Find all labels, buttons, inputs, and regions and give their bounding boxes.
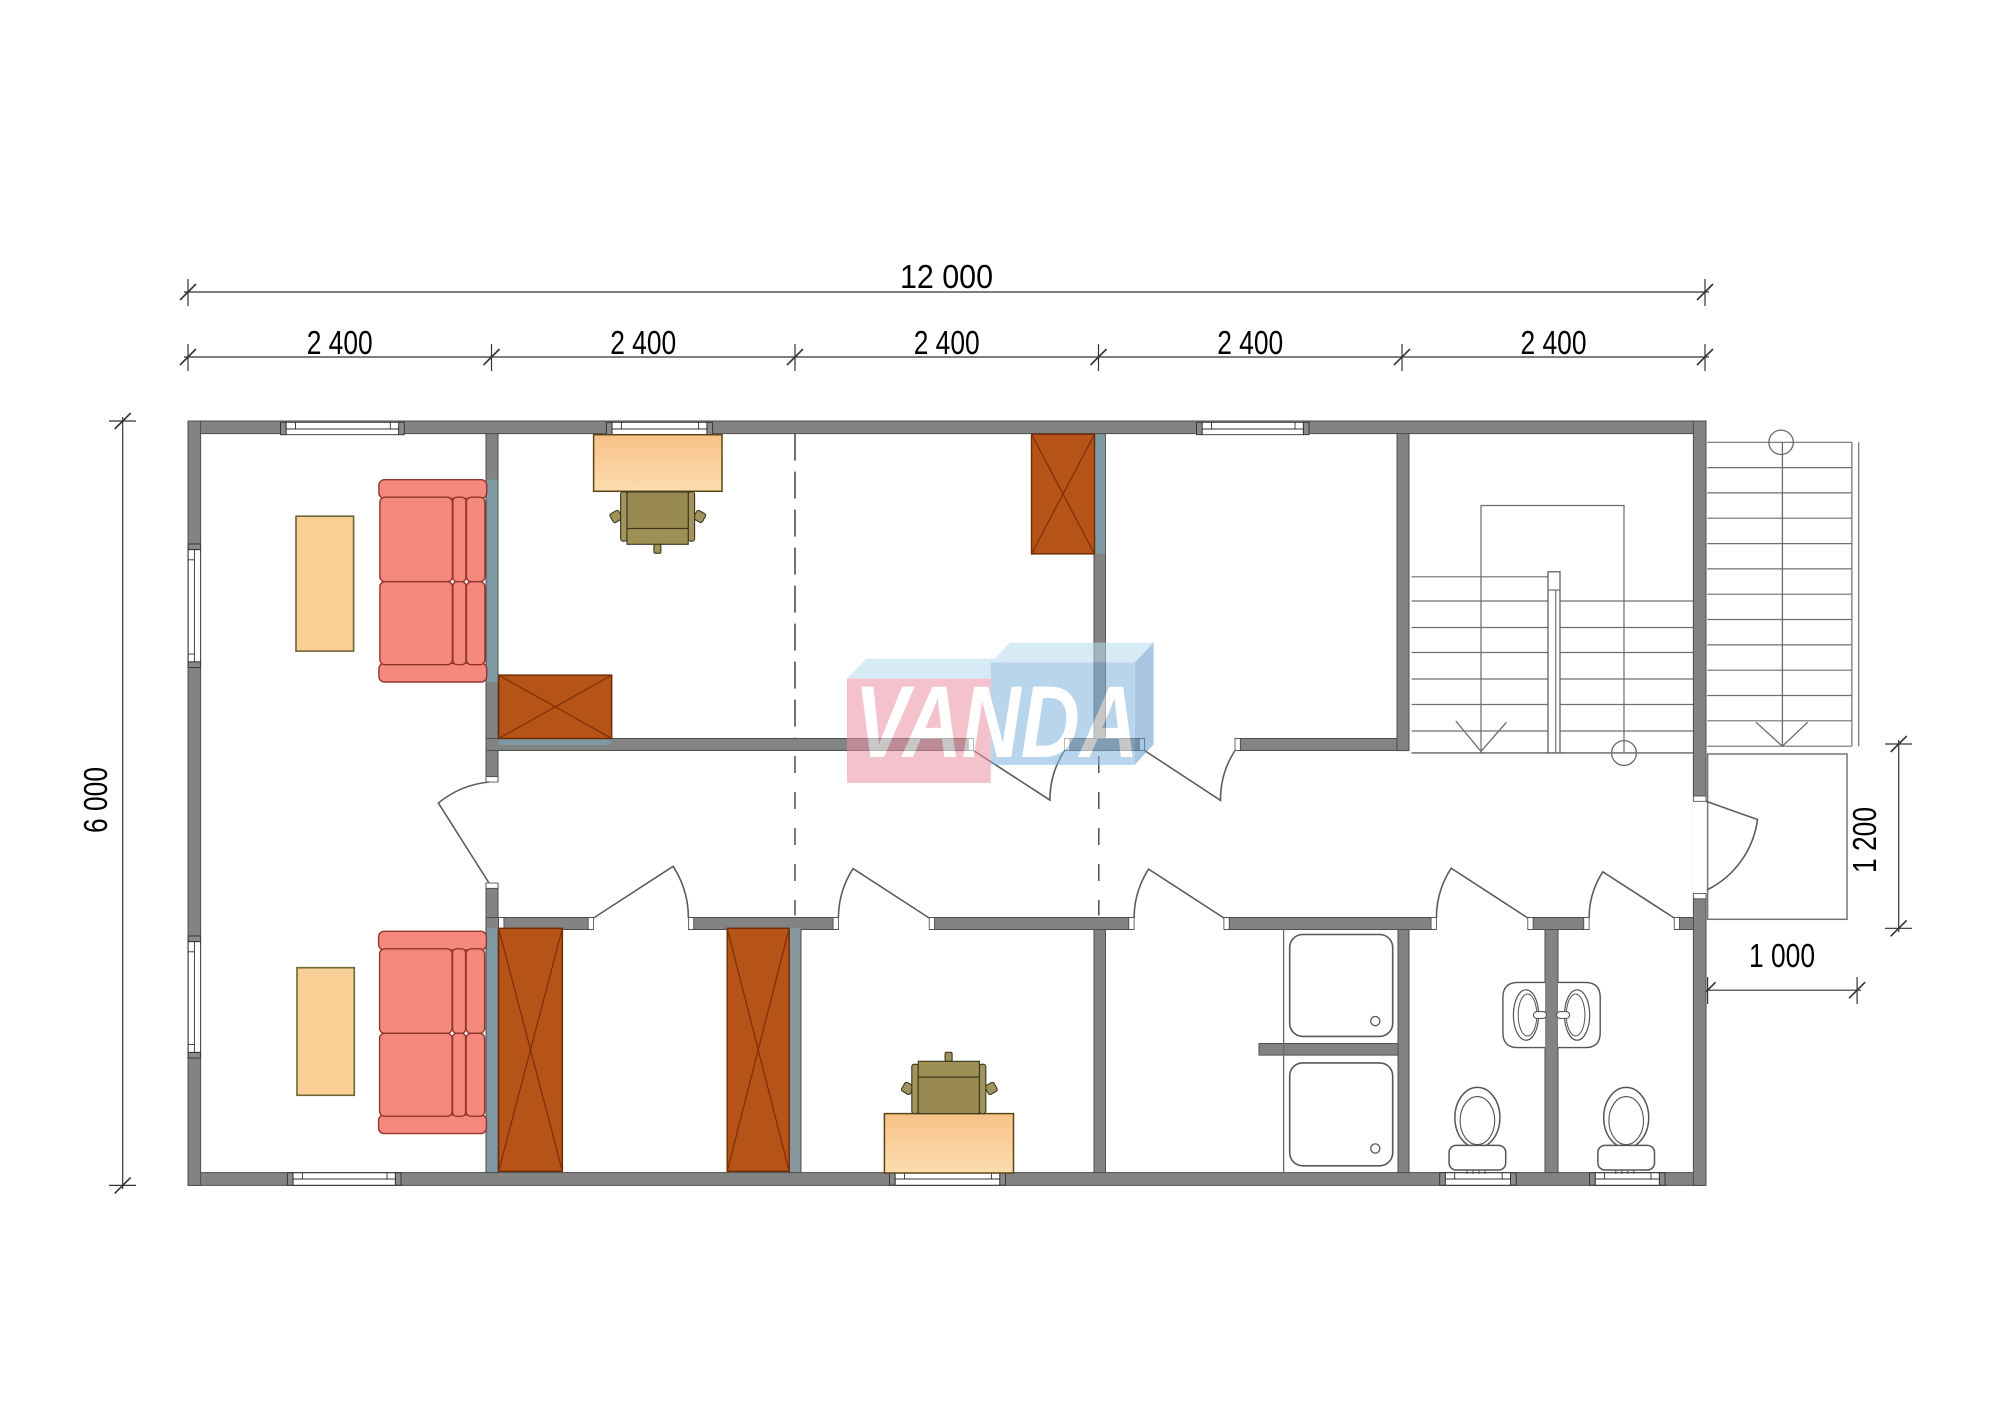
svg-text:2 400: 2 400 bbox=[307, 324, 373, 361]
svg-text:1 000: 1 000 bbox=[1749, 937, 1815, 974]
svg-text:2 400: 2 400 bbox=[1521, 324, 1587, 361]
svg-text:2 400: 2 400 bbox=[610, 324, 676, 361]
svg-text:12 000: 12 000 bbox=[900, 258, 993, 295]
svg-text:2 400: 2 400 bbox=[914, 324, 980, 361]
svg-text:VANDA: VANDA bbox=[854, 664, 1138, 779]
svg-text:2 400: 2 400 bbox=[1217, 324, 1283, 361]
svg-text:6 000: 6 000 bbox=[77, 767, 114, 833]
svg-text:1 200: 1 200 bbox=[1846, 807, 1883, 873]
